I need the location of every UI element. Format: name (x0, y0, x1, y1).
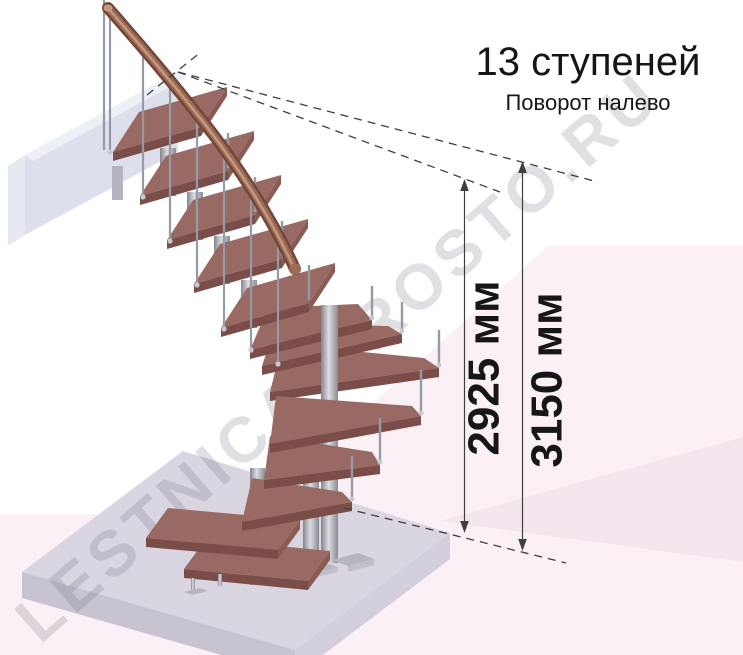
handrail-end-cap (289, 263, 300, 274)
steps-count-title: 13 ступеней (430, 41, 743, 83)
turn-direction-subtitle: Поворот налево (430, 90, 743, 116)
wall-end-face (8, 155, 25, 246)
dimension-label-2925: 2925 мм (460, 280, 509, 455)
handrail-top-cap (104, 5, 113, 12)
staircase-diagram: LESTNICA-PROSTO.RU (0, 0, 743, 655)
wall-mount-bracket (112, 166, 123, 200)
dimension-label-3150: 3150 мм (523, 292, 572, 467)
